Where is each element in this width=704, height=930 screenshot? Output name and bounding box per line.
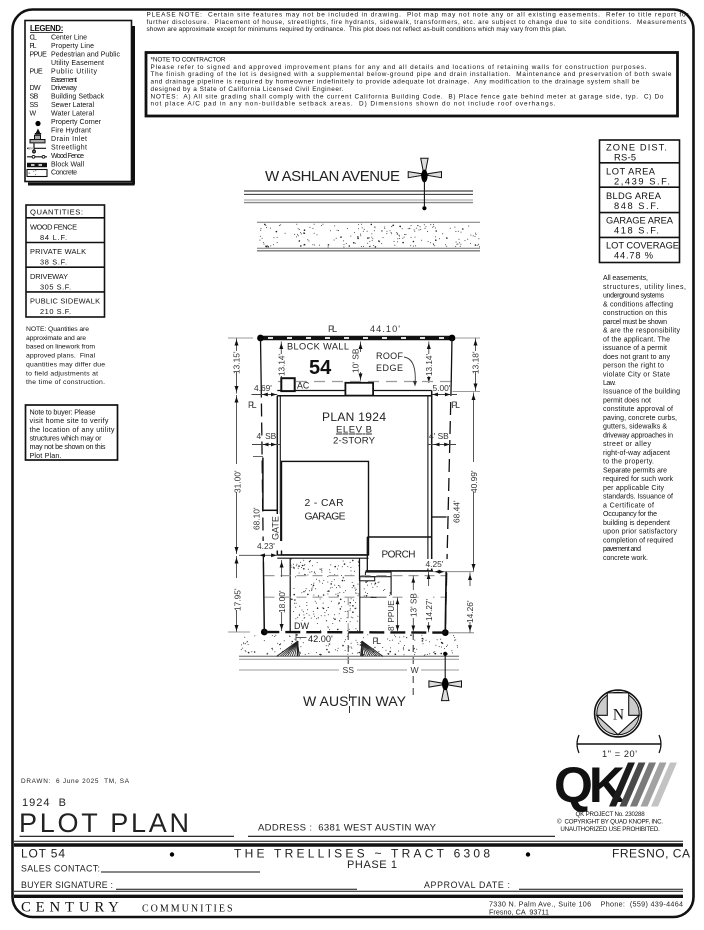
svg-text:© COPYRIGHT BY QUAD KNOPF, IN: © COPYRIGHT BY QUAD KNOPF, INC. (557, 819, 663, 826)
svg-text:Public Utility: Public Utility (51, 68, 98, 75)
svg-text:Water Lateral: Water Lateral (51, 111, 94, 118)
svg-text:BLDG AREA: BLDG AREA (606, 191, 662, 201)
svg-text:Fresno, CA 93711: Fresno, CA 93711 (489, 908, 549, 917)
svg-text:305 S.F.: 305 S.F. (40, 282, 71, 291)
svg-text:standards. Issuance of: standards. Issuance of (603, 494, 673, 501)
svg-text:the location of any utility: the location of any utility (30, 425, 115, 434)
svg-text:17.95': 17.95' (233, 588, 243, 611)
svg-text:Utility Easement: Utility Easement (51, 60, 104, 67)
svg-text:UNAUTHORIZED USE PROHIBITED.: UNAUTHORIZED USE PROHIBITED. (560, 826, 660, 833)
svg-text:418 S.F.: 418 S.F. (614, 226, 659, 236)
svg-text:Wood Fence: Wood Fence (51, 153, 84, 160)
svg-text:PUE: PUE (30, 68, 44, 75)
svg-text:2 - CAR: 2 - CAR (305, 498, 344, 509)
svg-text:Issuance of the building: Issuance of the building (603, 389, 680, 396)
svg-text:Streetlight: Streetlight (51, 144, 87, 151)
svg-text:Driveway: Driveway (51, 85, 78, 92)
svg-text:approximate and are: approximate and are (26, 335, 86, 342)
svg-text:PL: PL (328, 324, 337, 335)
svg-text:required for such work: required for such work (603, 476, 674, 483)
svg-text:2,439 S.F.: 2,439 S.F. (614, 177, 670, 187)
svg-text:PL: PL (248, 400, 257, 410)
svg-text:LEGEND:: LEGEND: (30, 24, 63, 33)
svg-text:848 S.F.: 848 S.F. (614, 201, 659, 211)
svg-text:construction on this: construction on this (603, 310, 668, 317)
svg-text:W ASHLAN AVENUE: W ASHLAN AVENUE (265, 168, 400, 185)
svg-text:COMMUNITIES: COMMUNITIES (142, 904, 235, 915)
svg-text:pavement and: pavement and (603, 546, 641, 553)
svg-text:13.18': 13.18' (471, 351, 481, 374)
svg-text:quantities may differ due: quantities may differ due (26, 361, 105, 368)
svg-text:Plot Plan.: Plot Plan. (30, 451, 62, 460)
svg-text:Center Line: Center Line (51, 35, 87, 42)
svg-text:210 S.F.: 210 S.F. (40, 307, 71, 316)
svg-text:All easements,: All easements, (603, 275, 648, 282)
svg-text:13' SB: 13' SB (410, 593, 419, 617)
svg-text:PPUE: PPUE (30, 51, 48, 58)
svg-text:Building Setback: Building Setback (51, 94, 105, 101)
svg-text:*NOTE TO CONTRACTOR: *NOTE TO CONTRACTOR (151, 57, 226, 64)
svg-text:GARAGE: GARAGE (305, 512, 346, 523)
svg-text:Easement: Easement (51, 77, 77, 84)
svg-text:14.26': 14.26' (465, 600, 475, 623)
svg-text:approved plans. Final: approved plans. Final (26, 353, 95, 360)
svg-text:4.23': 4.23' (257, 541, 275, 551)
svg-text:Pedestrian and Public: Pedestrian and Public (51, 51, 121, 58)
svg-text:Concrete: Concrete (51, 170, 77, 177)
svg-text:of the applicant. The: of the applicant. The (603, 336, 670, 343)
svg-text:FRESNO, CA: FRESNO, CA (612, 847, 690, 861)
svg-text:PLAN 1924: PLAN 1924 (322, 410, 386, 424)
svg-text:driveway approaches in: driveway approaches in (603, 432, 673, 439)
svg-text:LOT 54: LOT 54 (21, 847, 65, 861)
svg-text:8' PPUE: 8' PPUE (387, 600, 396, 631)
svg-text:violate City or State: violate City or State (603, 371, 670, 378)
svg-text:designed by a State of Califor: designed by a State of California Licens… (151, 86, 344, 93)
svg-text:BLOCK WALL: BLOCK WALL (287, 342, 349, 352)
svg-text:Fire Hydrant: Fire Hydrant (51, 127, 91, 134)
svg-text:RS-5: RS-5 (614, 153, 636, 163)
svg-text:issuance of a permit: issuance of a permit (603, 345, 667, 352)
svg-text:DW: DW (294, 621, 309, 631)
svg-text:ROOF: ROOF (376, 351, 404, 361)
svg-text:13.15': 13.15' (232, 351, 242, 374)
svg-text:person the right to: person the right to (603, 363, 664, 370)
svg-text:does not grant to any: does not grant to any (603, 354, 671, 361)
svg-text:ELEV B: ELEV B (336, 425, 372, 436)
svg-text:right-of-way adjacent: right-of-way adjacent (603, 450, 670, 457)
svg-text:constitute approval of: constitute approval of (603, 406, 673, 413)
svg-text:gutters, sidewalks &: gutters, sidewalks & (603, 424, 667, 431)
svg-text:Occupancy for the: Occupancy for the (603, 511, 657, 518)
svg-text:Separate permits are: Separate permits are (603, 467, 667, 474)
svg-text:APPROVAL DATE :: APPROVAL DATE : (424, 880, 510, 890)
svg-text:BUYER SIGNATURE :: BUYER SIGNATURE : (21, 880, 113, 890)
svg-text:concrete work.: concrete work. (603, 555, 648, 562)
svg-text:structures which may or: structures which may or (30, 433, 103, 442)
svg-text:38 S.F.: 38 S.F. (40, 258, 67, 267)
svg-text:a Certificate of: a Certificate of (603, 502, 654, 509)
svg-text:further disclosure. Placement: further disclosure. Placement of house, … (147, 19, 687, 26)
svg-text:ADDRESS : 6381 WEST AUSTIN WA: ADDRESS : 6381 WEST AUSTIN WAY (258, 823, 437, 834)
svg-text:PLOT PLAN: PLOT PLAN (19, 808, 189, 838)
svg-text:building is dependent: building is dependent (603, 520, 670, 527)
svg-text:DRAWN: 6 June 2025 TM, SA: DRAWN: 6 June 2025 TM, SA (21, 778, 130, 785)
svg-text:visit home site to verify: visit home site to verify (30, 416, 109, 425)
svg-text:44.78 %: 44.78 % (614, 251, 653, 261)
svg-text:SS: SS (30, 102, 39, 109)
svg-text:AC: AC (297, 381, 310, 391)
svg-text:upon prior satisfactory: upon prior satisfactory (603, 529, 678, 536)
svg-text:may not be shown on this: may not be shown on this (30, 442, 106, 451)
svg-text:PORCH: PORCH (382, 550, 416, 561)
svg-text:5.00': 5.00' (433, 383, 451, 393)
svg-text:to field adjustments at: to field adjustments at (26, 370, 98, 377)
svg-text:& are the responsibility: & are the responsibility (603, 328, 681, 335)
svg-text:QUANTITIES:: QUANTITIES: (30, 208, 83, 217)
svg-text:W AUSTIN WAY: W AUSTIN WAY (303, 693, 407, 709)
svg-text:SB: SB (30, 94, 39, 101)
svg-text:PL: PL (452, 400, 461, 410)
svg-text:DRIVEWAY: DRIVEWAY (30, 272, 68, 281)
svg-text:WOOD FENCE: WOOD FENCE (30, 223, 77, 232)
svg-text:13.14': 13.14' (277, 354, 286, 376)
svg-text:and drainage pipeline is requi: and drainage pipeline is required by hom… (151, 79, 640, 86)
svg-text:Property Corner: Property Corner (51, 119, 102, 126)
svg-text:structures, utility lines,: structures, utility lines, (603, 284, 686, 291)
svg-text:4' SB: 4' SB (257, 431, 277, 441)
svg-text:shown are approximate except f: shown are approximate except for minimum… (147, 26, 567, 33)
svg-text:CENTURY: CENTURY (21, 900, 124, 916)
svg-text:Law.: Law. (603, 380, 616, 387)
svg-text:Note to buyer: Please: Note to buyer: Please (30, 408, 96, 417)
svg-text:10' SB: 10' SB (351, 348, 361, 373)
svg-text:QK PROJECT No. 230288: QK PROJECT No. 230288 (576, 811, 646, 818)
svg-text:to the property.: to the property. (603, 459, 654, 466)
svg-text:GARAGE AREA: GARAGE AREA (606, 216, 674, 226)
svg-text:W: W (411, 665, 420, 675)
svg-text:based on linework from: based on linework from (26, 344, 95, 351)
svg-text:68.44': 68.44' (452, 500, 462, 523)
svg-text:completion of required: completion of required (603, 537, 673, 544)
svg-text:PRIVATE WALK: PRIVATE WALK (30, 247, 86, 256)
svg-text:PLEASE NOTE: Certain site fea: PLEASE NOTE: Certain site features may n… (147, 12, 690, 19)
svg-text:SALES CONTACT:: SALES CONTACT: (21, 864, 100, 874)
svg-text:PHASE 1: PHASE 1 (347, 859, 397, 871)
svg-text:NOTE: Quantities are: NOTE: Quantities are (26, 326, 89, 333)
svg-text:PUBLIC SIDEWALK: PUBLIC SIDEWALK (30, 297, 100, 306)
svg-text:DW: DW (30, 85, 41, 92)
svg-text:18.00': 18.00' (277, 590, 287, 613)
svg-text:14.27': 14.27' (425, 599, 434, 621)
svg-text:Please refer to signed and app: Please refer to signed and approved impr… (151, 64, 647, 71)
svg-text:ZONE DIST.: ZONE DIST. (606, 143, 667, 153)
svg-text:parcel must be shown: parcel must be shown (603, 319, 667, 326)
svg-text:paving, concrete curbs,: paving, concrete curbs, (603, 415, 677, 422)
svg-text:SS: SS (343, 665, 355, 675)
svg-text:4.69': 4.69' (254, 383, 272, 393)
svg-text:underground systems: underground systems (603, 293, 665, 300)
svg-text:2-STORY: 2-STORY (333, 436, 376, 447)
svg-text:The finish grading of the lot: The finish grading of the lot is designe… (151, 71, 672, 78)
svg-text:permit does not: permit does not (603, 397, 651, 404)
svg-text:4.25': 4.25' (426, 559, 444, 569)
svg-text:NOTES: A) All site grading sh: NOTES: A) All site grading shall comply … (151, 93, 664, 100)
svg-text:Sewer Lateral: Sewer Lateral (51, 102, 94, 109)
svg-text:the time of construction.: the time of construction. (26, 379, 105, 386)
svg-text:31.00': 31.00' (233, 470, 243, 493)
svg-text:EDGE: EDGE (376, 363, 403, 373)
svg-text:4' SB: 4' SB (429, 431, 449, 441)
svg-text:LOT COVERAGE: LOT COVERAGE (606, 241, 679, 251)
svg-text:N: N (613, 707, 624, 724)
svg-text:per applicable City: per applicable City (603, 485, 665, 492)
svg-text:68.10': 68.10' (252, 507, 262, 530)
svg-text:Property Line: Property Line (51, 43, 94, 50)
svg-text:42.00': 42.00' (308, 634, 333, 644)
svg-text:LOT AREA: LOT AREA (606, 167, 656, 177)
svg-text:44.10': 44.10' (370, 324, 400, 334)
svg-text:not place A/C pad in any non-b: not place A/C pad in any non-buildable s… (151, 101, 556, 108)
svg-text:& conditions affecting: & conditions affecting (603, 301, 673, 308)
svg-text:Drain Inlet: Drain Inlet (51, 136, 87, 143)
svg-text:13.14': 13.14' (425, 354, 434, 376)
svg-text:Block Wall: Block Wall (51, 161, 84, 168)
svg-text:street or alley: street or alley (603, 441, 652, 448)
svg-text:W: W (30, 111, 37, 118)
svg-text:GATE: GATE (271, 516, 281, 540)
svg-text:54: 54 (309, 357, 332, 379)
svg-text:84 L.F.: 84 L.F. (40, 233, 67, 242)
svg-text:40.99': 40.99' (469, 470, 479, 493)
